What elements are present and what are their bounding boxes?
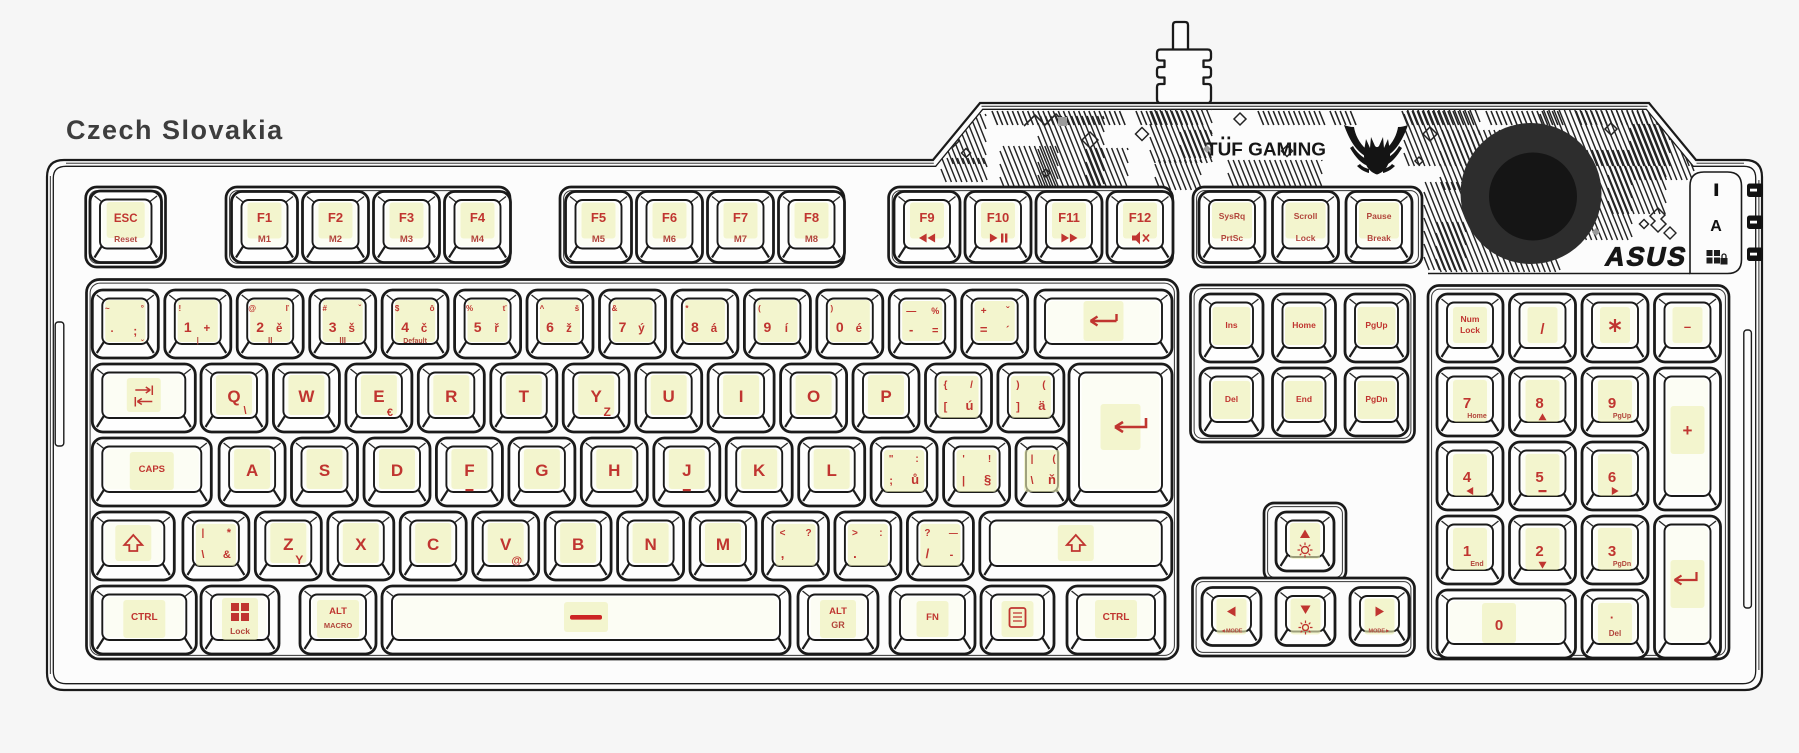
svg-text:X: X [355, 535, 367, 554]
svg-text:9: 9 [764, 319, 772, 335]
svg-text:=: = [980, 322, 988, 337]
svg-text:3: 3 [1608, 543, 1616, 560]
svg-text:Y: Y [295, 553, 303, 567]
svg-text:1: 1 [184, 319, 192, 335]
svg-text:PgDn: PgDn [1613, 561, 1631, 568]
svg-text:€: € [387, 407, 393, 419]
svg-text:Pause: Pause [1366, 211, 1391, 221]
svg-text:TUF GAMING: TUF GAMING [1206, 139, 1326, 160]
svg-text:GR: GR [831, 620, 845, 630]
svg-text:.: . [853, 546, 857, 561]
svg-text:PgDn: PgDn [1365, 394, 1387, 404]
svg-text:/: / [970, 380, 973, 391]
svg-text:7: 7 [1463, 395, 1471, 412]
svg-text:M: M [716, 535, 730, 554]
svg-text:?: ? [805, 528, 811, 539]
svg-text:2: 2 [1535, 543, 1543, 560]
svg-text:ů: ů [911, 472, 919, 487]
svg-text:+: + [203, 323, 210, 335]
svg-text:ä: ä [1038, 398, 1046, 413]
svg-text:+: + [1683, 421, 1693, 440]
svg-text:ř: ř [494, 323, 499, 335]
svg-text:F6: F6 [662, 210, 677, 225]
svg-text:): ) [1016, 380, 1019, 391]
svg-text:F7: F7 [733, 210, 748, 225]
svg-text:*: * [227, 527, 232, 539]
svg-text:CAPS: CAPS [139, 464, 165, 475]
svg-text:%: % [466, 304, 473, 313]
svg-text:|: | [197, 336, 199, 345]
svg-text:·: · [110, 326, 114, 338]
svg-text:{: { [944, 380, 948, 391]
svg-text:!: ! [178, 304, 181, 313]
svg-text:Num: Num [1461, 314, 1480, 324]
svg-text:$: $ [395, 304, 400, 313]
svg-text:\: \ [1030, 475, 1033, 487]
svg-text:F12: F12 [1129, 210, 1151, 225]
svg-text:2: 2 [256, 319, 264, 335]
svg-text:C: C [427, 535, 439, 554]
svg-text:%: % [931, 306, 939, 316]
svg-text:;: ; [133, 324, 137, 338]
svg-text:Scroll: Scroll [1294, 211, 1318, 221]
svg-text:F3: F3 [399, 210, 414, 225]
svg-text:M8: M8 [805, 234, 818, 245]
svg-text:@: @ [248, 304, 256, 313]
svg-text:): ) [830, 304, 833, 313]
svg-text:Z: Z [283, 535, 293, 554]
svg-text:4: 4 [1463, 469, 1472, 486]
svg-text:U: U [663, 387, 675, 406]
svg-text:–: – [1684, 319, 1691, 334]
svg-text:D: D [391, 461, 403, 480]
svg-text:K: K [753, 461, 766, 480]
svg-text:8: 8 [691, 319, 699, 335]
svg-text:SysRq: SysRq [1219, 211, 1245, 221]
svg-text:End: End [1470, 561, 1483, 568]
svg-text:°: ° [141, 304, 144, 313]
svg-text:F2: F2 [328, 210, 343, 225]
svg-text:F10: F10 [987, 210, 1009, 225]
svg-text:]: ] [1016, 401, 1020, 413]
svg-text:S: S [319, 461, 330, 480]
svg-text:Ins: Ins [1225, 320, 1238, 330]
svg-text:\: \ [201, 549, 204, 561]
svg-text:Reset: Reset [114, 234, 137, 244]
svg-text:I: I [739, 387, 744, 406]
svg-text:ALT: ALT [329, 606, 347, 617]
svg-text:ˇ: ˇ [358, 304, 361, 313]
svg-text:5: 5 [474, 319, 482, 335]
svg-text:ˇ: ˇ [141, 339, 144, 348]
svg-text:ALT: ALT [829, 606, 847, 617]
svg-text:A: A [246, 461, 258, 480]
svg-text:Lock: Lock [1460, 325, 1480, 335]
svg-text:W: W [298, 387, 315, 406]
svg-text:@: @ [511, 555, 522, 567]
svg-text:PgUp: PgUp [1365, 320, 1387, 330]
svg-text:O: O [807, 387, 820, 406]
svg-text:M4: M4 [471, 234, 485, 245]
svg-text:3: 3 [329, 319, 337, 335]
svg-text:F1: F1 [257, 210, 272, 225]
svg-text:0: 0 [1495, 617, 1503, 634]
svg-text:é: é [856, 323, 862, 335]
svg-text:|: | [1031, 454, 1034, 465]
svg-text:T: T [519, 387, 530, 406]
svg-text:~: ~ [105, 304, 110, 313]
svg-text:·: · [1610, 610, 1614, 625]
svg-text:A: A [1710, 218, 1722, 235]
svg-text:8: 8 [1535, 395, 1543, 412]
svg-text:E: E [373, 387, 384, 406]
svg-text:F: F [464, 461, 474, 480]
svg-text:CTRL: CTRL [131, 612, 158, 623]
svg-text:5: 5 [1535, 469, 1543, 486]
svg-text:N: N [644, 535, 656, 554]
svg-text:Lock: Lock [230, 626, 250, 636]
svg-text:Z: Z [604, 405, 611, 419]
svg-text:&: & [612, 304, 618, 313]
svg-text:M2: M2 [329, 234, 342, 245]
svg-text:ť: ť [503, 304, 507, 313]
svg-text:CTRL: CTRL [1103, 612, 1130, 623]
svg-text:MACRO: MACRO [324, 621, 352, 630]
svg-text:F8: F8 [804, 210, 819, 225]
svg-text:;: ; [889, 475, 893, 487]
svg-text:FN: FN [926, 612, 939, 623]
svg-text:F4: F4 [470, 210, 486, 225]
svg-text:ô: ô [430, 304, 435, 313]
svg-text:Break: Break [1367, 233, 1391, 243]
svg-text:H: H [608, 461, 620, 480]
svg-text:§: § [984, 472, 991, 487]
svg-text:,: , [781, 546, 785, 561]
svg-text:Del: Del [1225, 394, 1238, 404]
svg-text:^: ^ [540, 304, 545, 313]
svg-text:ž: ž [566, 323, 572, 335]
svg-text:ESC: ESC [114, 213, 138, 225]
svg-text:š: š [348, 323, 354, 335]
svg-text:B: B [572, 535, 584, 554]
svg-text:P: P [880, 387, 891, 406]
svg-text:#: # [322, 304, 327, 313]
svg-text:|: | [201, 528, 204, 539]
svg-text:0: 0 [836, 319, 844, 335]
svg-text:|: | [962, 475, 965, 487]
svg-text:4: 4 [401, 319, 409, 335]
svg-text:Czech Slovakia: Czech Slovakia [66, 115, 284, 145]
svg-text:III: III [339, 336, 346, 345]
svg-text:': ' [962, 454, 964, 465]
svg-text:š: š [575, 304, 580, 313]
svg-text:7: 7 [619, 319, 627, 335]
svg-text:-: - [909, 322, 913, 337]
svg-text:?: ? [924, 528, 930, 539]
svg-text:F5: F5 [591, 210, 606, 225]
svg-text:ý: ý [638, 323, 645, 335]
svg-text:=: = [932, 325, 938, 337]
svg-text:—: — [949, 528, 958, 538]
svg-text:End: End [1296, 394, 1312, 404]
svg-text:M3: M3 [400, 234, 413, 245]
svg-text:PgUp: PgUp [1613, 413, 1631, 420]
svg-text:>: > [852, 528, 858, 539]
svg-text:L: L [827, 461, 837, 480]
svg-text:6: 6 [546, 319, 554, 335]
svg-text:M7: M7 [734, 234, 747, 245]
svg-text:6: 6 [1608, 469, 1616, 486]
svg-text:<: < [780, 528, 786, 539]
svg-text:Y: Y [591, 387, 603, 406]
svg-text:M1: M1 [258, 234, 272, 245]
svg-text:(: ( [758, 304, 761, 313]
svg-text:II: II [268, 336, 272, 345]
svg-text::: : [915, 454, 918, 465]
svg-text:Home: Home [1467, 413, 1487, 420]
svg-text:[: [ [944, 401, 948, 413]
svg-text:R: R [445, 387, 457, 406]
svg-text:/: / [926, 546, 930, 561]
svg-text:ú: ú [966, 398, 974, 413]
svg-text:Q: Q [227, 387, 240, 406]
svg-text:1: 1 [1463, 543, 1471, 560]
svg-text:G: G [535, 461, 548, 480]
svg-text:ě: ě [276, 323, 282, 335]
svg-text:PrtSc: PrtSc [1221, 233, 1243, 243]
svg-text:+: + [981, 306, 987, 317]
svg-text:á: á [711, 323, 718, 335]
svg-text:": " [889, 454, 894, 465]
svg-text:!: ! [988, 454, 991, 465]
svg-text:F11: F11 [1058, 210, 1080, 225]
svg-text:F9: F9 [919, 210, 934, 225]
svg-text:V: V [500, 535, 512, 554]
svg-text:\: \ [243, 405, 246, 417]
svg-text:č: č [421, 323, 428, 335]
svg-text:M5: M5 [592, 234, 606, 245]
svg-text:—: — [906, 306, 916, 317]
svg-text:Lock: Lock [1296, 233, 1316, 243]
svg-text:9: 9 [1608, 395, 1616, 412]
svg-text:J: J [682, 461, 691, 480]
svg-text:´: ´ [1006, 325, 1010, 337]
svg-text:MODE►: MODE► [1369, 629, 1391, 635]
svg-text::: : [879, 528, 882, 539]
svg-text:ASUS: ASUS [1603, 242, 1691, 272]
svg-text:◄MODE: ◄MODE [1221, 629, 1243, 635]
svg-text:Del: Del [1609, 629, 1621, 638]
svg-text:-: - [950, 549, 954, 561]
svg-text:ň: ň [1048, 472, 1056, 487]
svg-text:M6: M6 [663, 234, 676, 245]
svg-text:Home: Home [1292, 320, 1316, 330]
svg-text:&: & [223, 549, 231, 561]
svg-text:Default: Default [403, 338, 427, 345]
